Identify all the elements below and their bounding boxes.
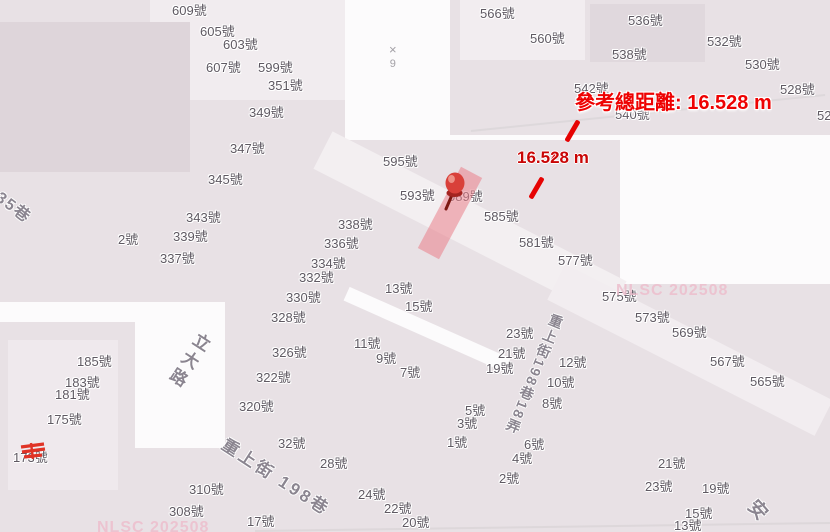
address-label: 565號 (750, 375, 785, 388)
address-label: 536號 (628, 14, 663, 27)
address-label: 343號 (186, 211, 221, 224)
address-label: 326號 (272, 346, 307, 359)
address-label: 338號 (338, 218, 373, 231)
address-label: 6號 (524, 438, 544, 451)
address-label: 581號 (519, 236, 554, 249)
address-label: 322號 (256, 371, 291, 384)
address-label: 528號 (780, 83, 815, 96)
watermark: NLSC 202508 (97, 519, 209, 532)
address-label: 345號 (208, 173, 243, 186)
address-label: 52 (817, 109, 830, 122)
address-label: 20號 (402, 516, 429, 529)
address-label: 32號 (278, 437, 305, 450)
address-label: 13號 (674, 519, 701, 532)
address-label: 2號 (118, 233, 138, 246)
address-label: 19號 (486, 362, 513, 375)
elevation-marker: × 9 (389, 42, 397, 70)
address-label: 351號 (268, 79, 303, 92)
address-label: 603號 (223, 38, 258, 51)
watermark: NLSC 202508 (616, 282, 728, 300)
building-footprint (0, 22, 190, 172)
address-label: 334號 (311, 257, 346, 270)
building-footprint (460, 0, 585, 60)
address-label: 185號 (77, 355, 112, 368)
address-label: 593號 (400, 189, 435, 202)
address-label: 13號 (385, 282, 412, 295)
address-label: 349號 (249, 106, 284, 119)
total-distance-label: 參考總距離: 16.528 m (575, 86, 772, 115)
address-label: 175號 (47, 413, 82, 426)
address-label: 532號 (707, 35, 742, 48)
address-label: 21號 (498, 347, 525, 360)
address-label: 10號 (547, 376, 574, 389)
address-label: 566號 (480, 7, 515, 20)
red-stamp-icon (18, 441, 48, 461)
address-label: 560號 (530, 32, 565, 45)
address-label: 8號 (542, 397, 562, 410)
address-label: 320號 (239, 400, 274, 413)
address-label: 538號 (612, 48, 647, 61)
address-label: 7號 (400, 366, 420, 379)
address-label: 599號 (258, 61, 293, 74)
address-label: 328號 (271, 311, 306, 324)
address-label: 24號 (358, 488, 385, 501)
address-label: 11號 (354, 337, 381, 350)
address-label: 4號 (512, 452, 532, 465)
elevation-cross-icon: × (389, 42, 397, 57)
pushpin-icon[interactable] (437, 170, 471, 212)
address-label: 573號 (635, 311, 670, 324)
address-label: 337號 (160, 252, 195, 265)
map-canvas[interactable]: 609號605號603號607號599號351號349號347號345號343號… (0, 0, 830, 532)
address-label: 12號 (559, 356, 586, 369)
address-label: 577號 (558, 254, 593, 267)
address-label: 22號 (384, 502, 411, 515)
address-label: 585號 (484, 210, 519, 223)
address-label: 530號 (745, 58, 780, 71)
address-label: 19號 (702, 482, 729, 495)
address-label: 332號 (299, 271, 334, 284)
address-label: 9號 (376, 352, 396, 365)
address-label: 181號 (55, 388, 90, 401)
address-label: 3號 (457, 417, 477, 430)
address-label: 347號 (230, 142, 265, 155)
address-label: 569號 (672, 326, 707, 339)
address-label: 595號 (383, 155, 418, 168)
address-label: 336號 (324, 237, 359, 250)
address-label: 330號 (286, 291, 321, 304)
address-label: 1號 (447, 436, 467, 449)
address-label: 609號 (172, 4, 207, 17)
address-label: 339號 (173, 230, 208, 243)
address-label: 15號 (405, 300, 432, 313)
address-label: 2號 (499, 472, 519, 485)
address-label: 28號 (320, 457, 347, 470)
address-label: 23號 (645, 480, 672, 493)
address-label: 567號 (710, 355, 745, 368)
address-label: 23號 (506, 327, 533, 340)
address-label: 308號 (169, 505, 204, 518)
street-name-label: 立大路 (164, 329, 213, 391)
elevation-value: 9 (389, 58, 397, 70)
address-label: 607號 (206, 61, 241, 74)
address-label: 17號 (247, 515, 274, 528)
address-label: 21號 (658, 457, 685, 470)
segment-distance-label: 16.528 m (517, 148, 589, 168)
address-label: 310號 (189, 483, 224, 496)
